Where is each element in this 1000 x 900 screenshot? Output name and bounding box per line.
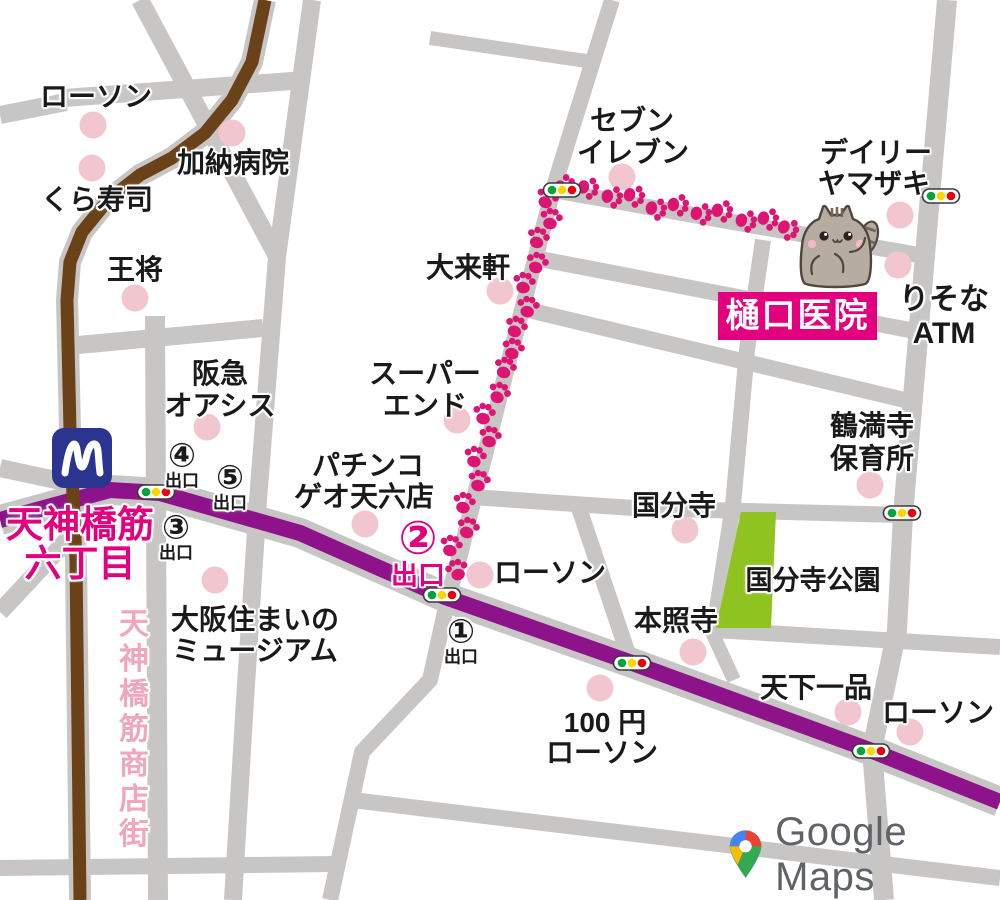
poi-dot — [79, 155, 106, 182]
poi-dot — [202, 567, 229, 594]
clinic-name-box: 樋口医院 — [718, 292, 877, 340]
traffic-light-icon — [424, 588, 461, 602]
poi-dot — [587, 675, 614, 702]
traffic-light-icon — [853, 744, 890, 758]
poi-dot — [487, 278, 514, 305]
poi-dot — [680, 639, 707, 666]
poi-dot — [609, 164, 636, 191]
google-maps-pin-icon — [728, 828, 763, 882]
road — [0, 102, 66, 115]
traffic-light-icon — [138, 485, 175, 499]
road — [155, 316, 158, 900]
poi-dot — [897, 719, 924, 746]
google-maps-wordmark: Google Maps — [775, 810, 1000, 900]
station-name: 天神橋筋六丁目 — [6, 506, 154, 584]
road — [430, 38, 593, 62]
clinic-name: 樋口医院 — [726, 299, 870, 333]
road — [472, 497, 902, 515]
road — [0, 864, 333, 868]
poi-dot — [857, 472, 884, 499]
poi-dot — [352, 511, 379, 538]
poi-dot — [835, 699, 862, 726]
poi-dot — [885, 252, 912, 279]
road — [715, 630, 1000, 647]
poi-dot — [444, 407, 471, 434]
poi-dot — [80, 112, 107, 139]
google-maps-attribution: Google Maps — [728, 810, 1000, 900]
traffic-light-icon — [544, 183, 581, 197]
poi-dot — [194, 414, 221, 441]
poi-dot — [219, 120, 246, 147]
poi-dot — [122, 285, 149, 312]
poi-dot — [887, 202, 914, 229]
cat-illustration — [790, 196, 885, 296]
poi-dot — [672, 517, 699, 544]
metro-logo-icon — [52, 428, 112, 488]
traffic-light-icon — [884, 506, 921, 520]
map-canvas — [0, 0, 1000, 900]
access-map: ローソン加納病院くら寿司王将阪急オアシススーパーエンドパチンコゲオ天六店大来軒セ… — [0, 0, 1000, 900]
traffic-light-icon — [923, 189, 960, 203]
traffic-light-icon — [614, 656, 651, 670]
road — [78, 328, 263, 345]
poi-dot — [467, 562, 494, 589]
